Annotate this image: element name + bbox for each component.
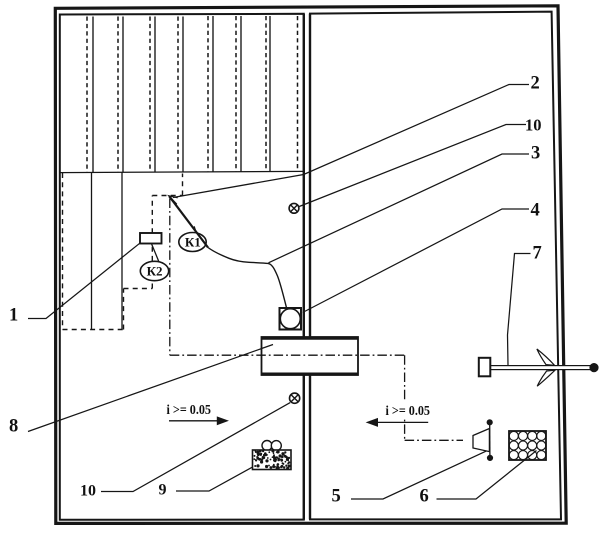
svg-text:3: 3 <box>531 144 540 164</box>
svg-text:К1: К1 <box>185 235 201 250</box>
svg-text:i >= 0.05: i >= 0.05 <box>386 404 431 419</box>
svg-text:7: 7 <box>533 244 542 264</box>
svg-text:8: 8 <box>9 417 18 437</box>
svg-text:5: 5 <box>332 487 341 507</box>
svg-text:i >= 0.05: i >= 0.05 <box>167 403 212 418</box>
svg-text:К2: К2 <box>147 264 163 279</box>
svg-text:6: 6 <box>420 487 429 507</box>
svg-text:10: 10 <box>525 116 542 135</box>
svg-text:4: 4 <box>531 201 540 221</box>
svg-text:9: 9 <box>159 482 167 499</box>
svg-text:10: 10 <box>80 483 96 500</box>
svg-text:1: 1 <box>9 306 18 326</box>
svg-text:2: 2 <box>531 74 540 94</box>
